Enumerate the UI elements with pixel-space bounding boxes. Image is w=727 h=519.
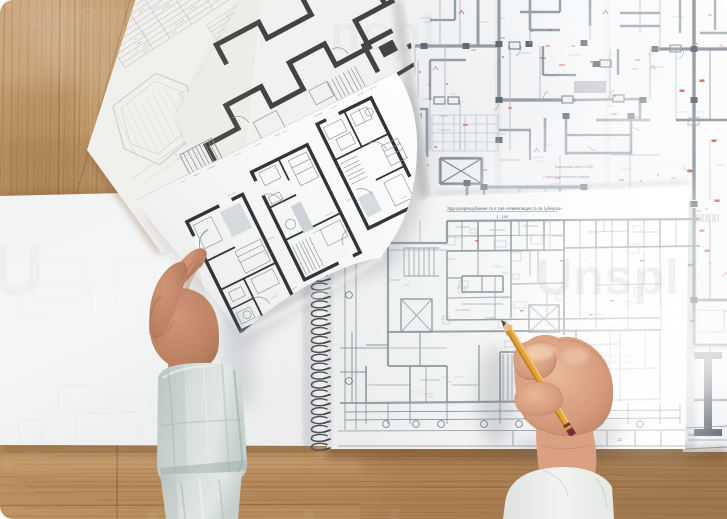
svg-text:U: U: [0, 231, 44, 311]
svg-text:Здр-разрешубание гъл.тая «Ниве: Здр-разрешубание гъл.тая «Нивелация 3-ла…: [447, 206, 563, 211]
svg-text:Unsplash: Unsplash: [145, 499, 424, 519]
svg-text:Unsp: Unsp: [26, 0, 121, 37]
svg-text:nspl: nspl: [330, 5, 437, 61]
svg-text:1 : 100: 1 : 100: [496, 214, 509, 219]
svg-text:Unspl: Unspl: [536, 249, 680, 305]
